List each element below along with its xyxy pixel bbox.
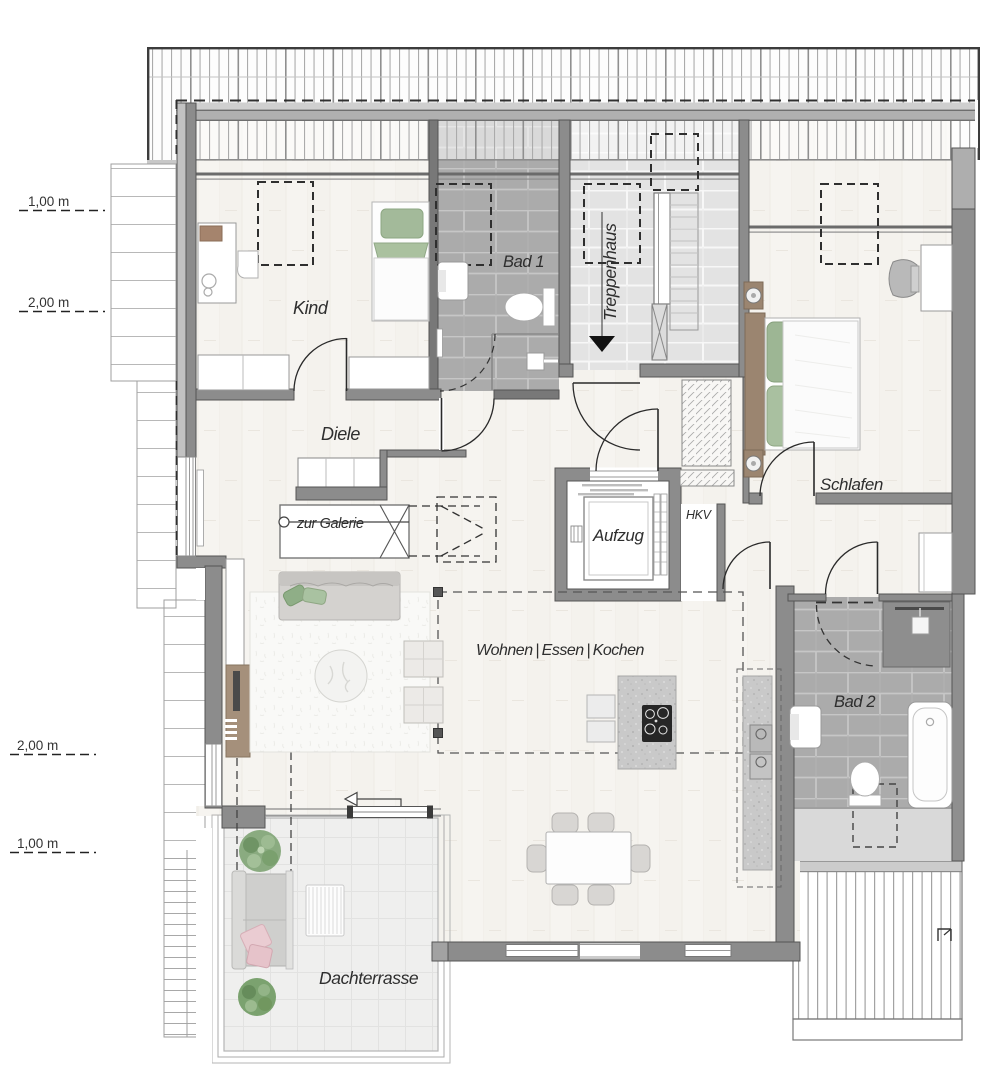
svg-text:Aufzug: Aufzug xyxy=(592,526,644,545)
svg-text:zur Galerie: zur Galerie xyxy=(296,516,364,532)
svg-text:Diele: Diele xyxy=(321,424,360,444)
svg-text:1,00 m: 1,00 m xyxy=(28,194,69,209)
svg-text:2,00 m: 2,00 m xyxy=(28,295,69,310)
svg-text:Schlafen: Schlafen xyxy=(820,475,883,494)
svg-text:Wohnen | Essen | Kochen: Wohnen | Essen | Kochen xyxy=(476,642,645,659)
svg-text:HKV: HKV xyxy=(686,508,713,522)
svg-text:Dachterrasse: Dachterrasse xyxy=(319,968,419,988)
svg-text:Treppenhaus: Treppenhaus xyxy=(600,223,620,321)
svg-text:Bad 2: Bad 2 xyxy=(834,693,875,711)
svg-text:1,00 m: 1,00 m xyxy=(17,836,58,851)
svg-text:Bad 1: Bad 1 xyxy=(503,253,544,271)
svg-text:Kind: Kind xyxy=(293,298,329,318)
svg-text:2,00 m: 2,00 m xyxy=(17,738,58,753)
